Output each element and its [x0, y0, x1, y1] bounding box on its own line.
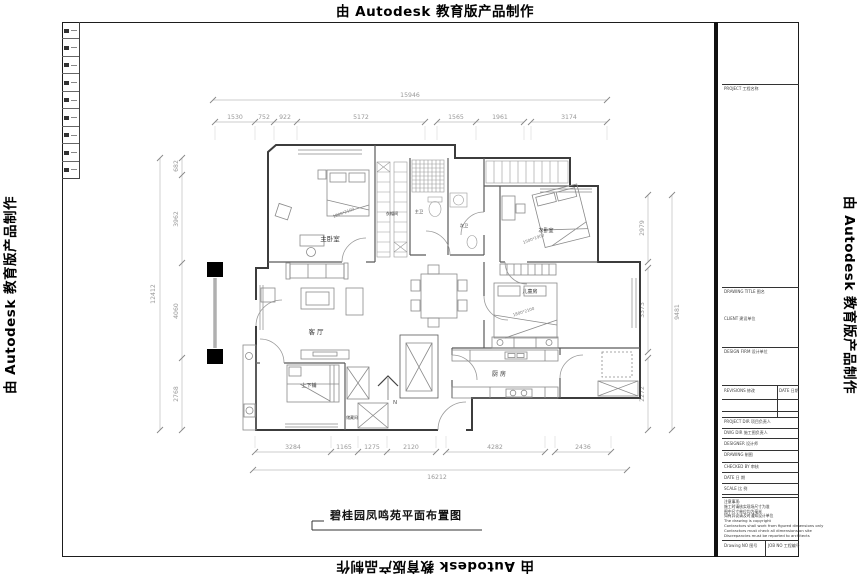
dimension-ticks — [157, 97, 675, 473]
second-bath-fixtures — [450, 193, 477, 249]
dim-bottom-seg: 1275 — [364, 444, 380, 451]
dim-top-total: 15946 — [400, 92, 420, 99]
north-label: N — [393, 400, 397, 406]
column-markers — [207, 262, 223, 364]
cloakroom-shelving — [377, 162, 407, 257]
dim-left-seg: 2768 — [173, 386, 180, 402]
dimension-lines — [160, 100, 672, 470]
dining-set — [411, 265, 467, 327]
drawing-title-underline — [312, 521, 482, 530]
dim-left-total: 12412 — [150, 284, 157, 304]
balcony-strip — [243, 345, 256, 430]
dim-top-seg: 752 — [258, 114, 270, 121]
room-label-storage: 储藏间 — [346, 415, 358, 420]
dim-right-total: 9481 — [674, 304, 681, 320]
dim-left-seg: 682 — [173, 160, 180, 172]
dim-top-seg: 1961 — [492, 114, 508, 121]
kids-room-bed — [492, 264, 558, 348]
dim-bottom-seg: 4282 — [487, 444, 503, 451]
room-label-second-bath: 次卫 — [460, 222, 468, 229]
hall-closet — [486, 161, 568, 183]
witness-lines — [215, 126, 611, 448]
bed-size-kids: 1800*2100 — [512, 306, 535, 318]
dim-bottom-seg: 2120 — [403, 444, 419, 451]
bed-size-second: 1500*1900 — [522, 232, 545, 245]
north-arrow: N — [378, 376, 398, 406]
floor-plan-canvas: 15946 1530 752 922 5172 1565 1961 3174 1… — [0, 0, 860, 580]
room-label-kids-room: 儿童房 — [522, 288, 537, 295]
dim-left-seg: 4060 — [173, 303, 180, 319]
room-label-kitchen: 厨 房 — [492, 370, 506, 378]
dim-bottom-seg: 1165 — [336, 444, 352, 451]
dim-top-seg: 1530 — [227, 114, 243, 121]
dim-top-seg: 922 — [279, 114, 291, 121]
dim-top-seg: 3174 — [561, 114, 577, 121]
room-label-bunk-room: 上下铺 — [301, 382, 316, 389]
room-label-cloakroom: 衣帽间 — [386, 210, 399, 217]
dim-bottom-seg: 3284 — [285, 444, 301, 451]
room-label-living-room: 客 厅 — [308, 327, 324, 336]
bed-size-master: 1800*2100 — [332, 206, 355, 219]
dim-top-seg: 1565 — [448, 114, 464, 121]
dim-left-seg: 3962 — [173, 211, 180, 227]
cad-sheet: 由 Autodesk 教育版产品制作 由 Autodesk 教育版产品制作 由 … — [0, 0, 860, 580]
dim-top-seg: 5172 — [353, 114, 369, 121]
room-label-master-bedroom: 主卧室 — [320, 234, 340, 243]
dim-bottom-seg: 2436 — [575, 444, 591, 451]
shafts-closets — [347, 335, 638, 428]
living-room-furniture — [261, 263, 363, 359]
dim-bottom-total: 16212 — [427, 474, 447, 481]
second-bedroom-bed — [502, 184, 590, 248]
master-bed — [275, 170, 369, 257]
room-label-master-bath: 主卫 — [415, 208, 423, 214]
dim-right-seg: 2979 — [639, 220, 646, 236]
